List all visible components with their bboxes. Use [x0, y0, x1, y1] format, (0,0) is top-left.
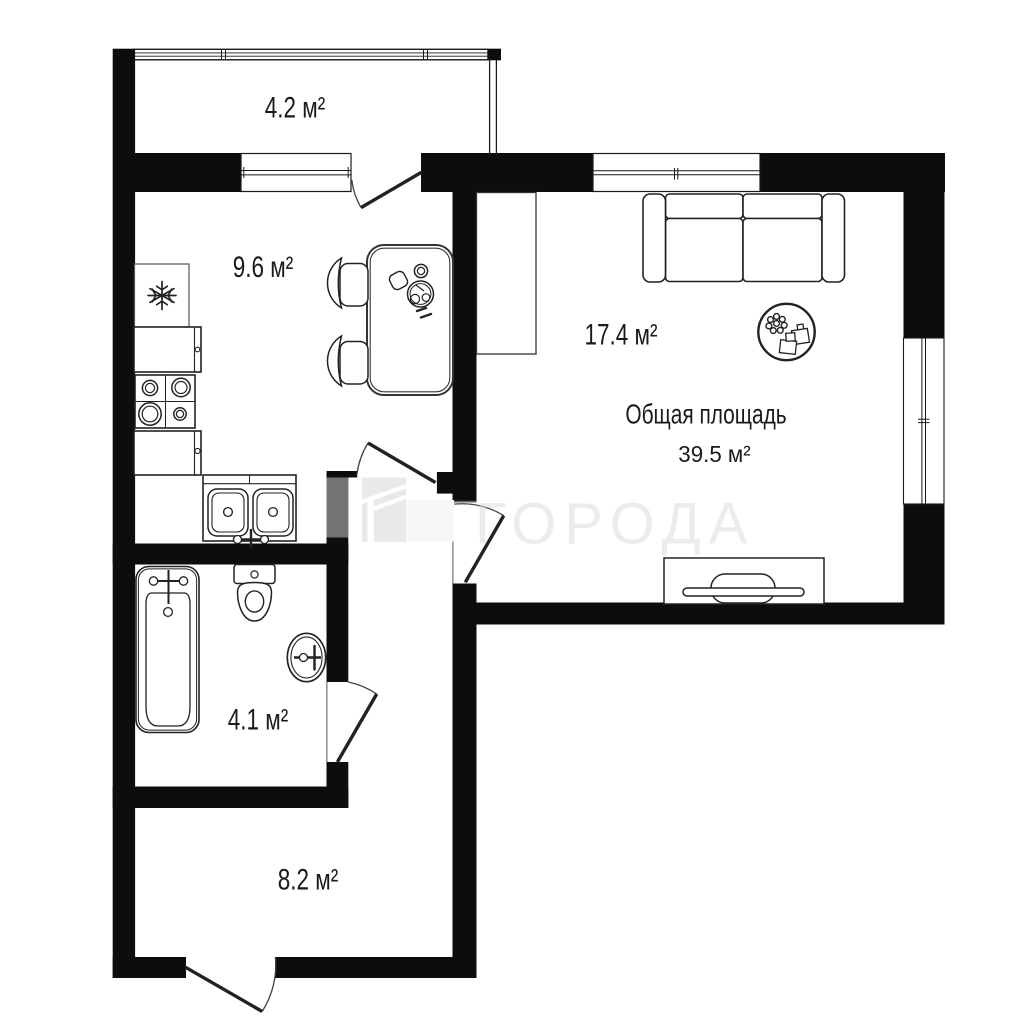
- svg-text:Общая площадь: Общая площадь: [625, 400, 786, 430]
- svg-text:4.1 м²: 4.1 м²: [228, 702, 289, 736]
- svg-text:4.2 м²: 4.2 м²: [265, 90, 326, 124]
- svg-text:ГОРОДА: ГОРОДА: [475, 492, 755, 557]
- svg-text:17.4 м²: 17.4 м²: [585, 317, 658, 351]
- svg-text:8.2 м²: 8.2 м²: [278, 862, 339, 896]
- svg-text:9.6 м²: 9.6 м²: [233, 250, 294, 284]
- svg-text:39.5 м²: 39.5 м²: [678, 440, 751, 467]
